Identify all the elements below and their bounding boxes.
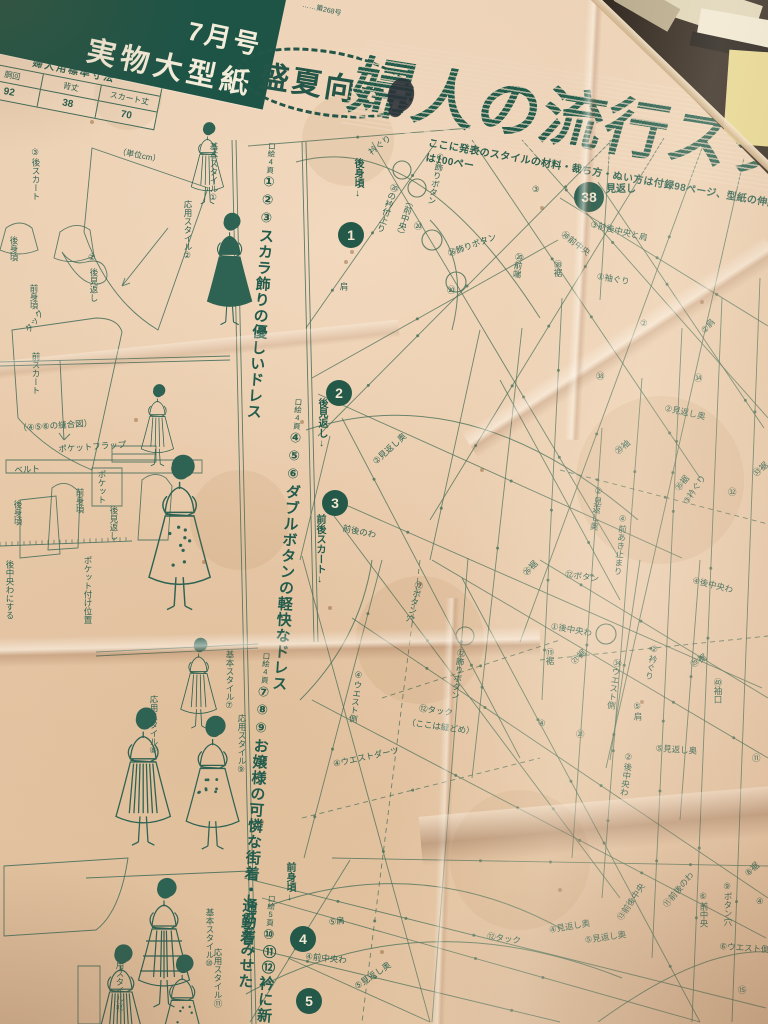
- photo-of-pattern-sheet: 衿ぐり⑳の衿付上り（前中央）①飾りボタン⑳㉖飾りボタン⑳⑳前端③③前後中央と肩㊳…: [0, 0, 768, 1024]
- dress-illustration: [191, 123, 223, 204]
- dress-illustration: [186, 716, 239, 849]
- dress-illustration: [97, 945, 145, 1024]
- dress-illustration: [159, 955, 205, 1024]
- dress-illustration: [116, 708, 170, 845]
- dress-illustration: [208, 213, 252, 324]
- dress-illustration: [139, 879, 190, 1007]
